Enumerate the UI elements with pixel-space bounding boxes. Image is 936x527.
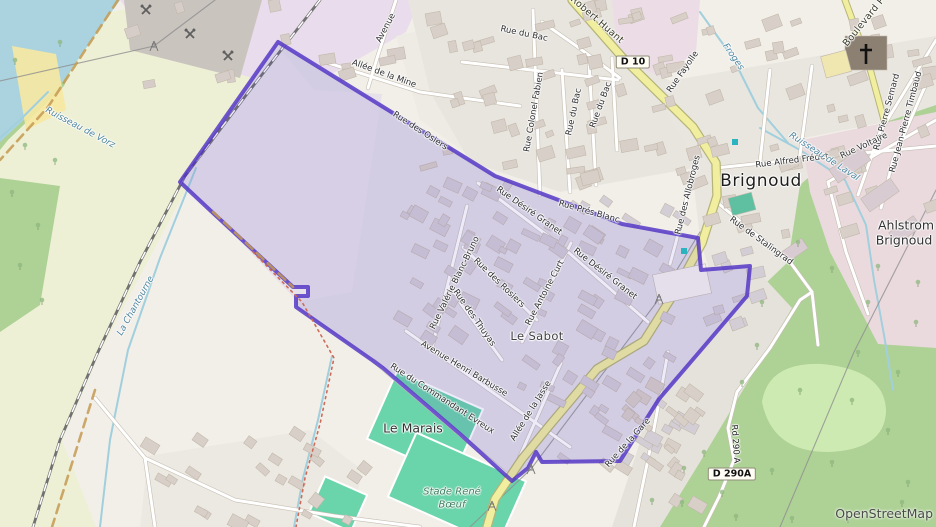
attribution-link[interactable]: OpenStreetMap [835, 506, 933, 521]
road-ref-shield: D 290A [708, 468, 756, 481]
map-geometry [0, 0, 936, 527]
road-ref-shield: D 10 [616, 56, 650, 69]
recycling-container-icon [681, 248, 687, 254]
map-canvas[interactable]: AvenueAllée de la MineRue du BacRue Colo… [0, 0, 936, 527]
recycling-container-icon [732, 139, 738, 145]
